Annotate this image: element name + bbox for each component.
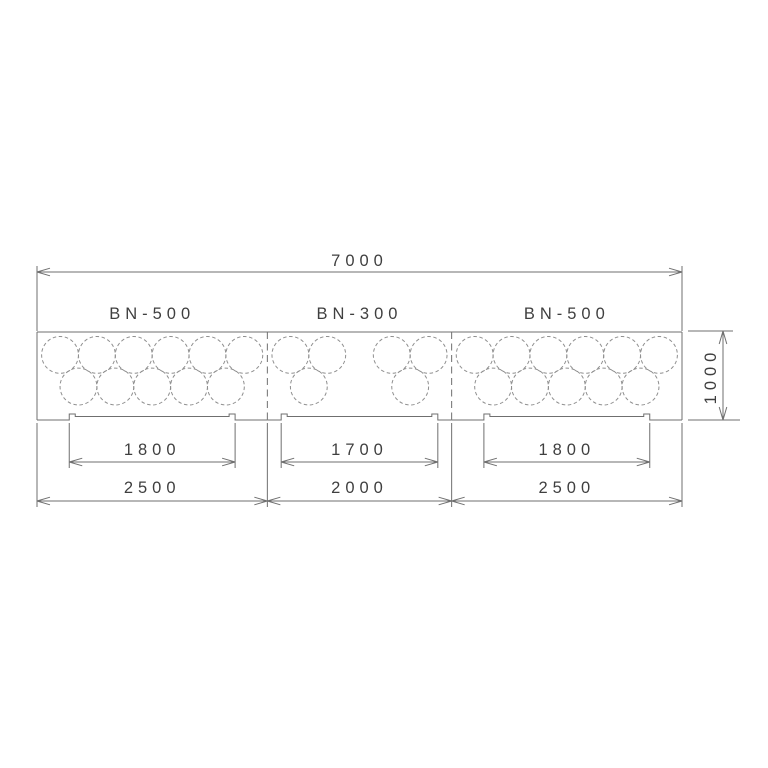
body-bottom-edge-with-opening	[37, 414, 267, 420]
section-label: BN-500	[524, 305, 610, 323]
culvert-body-outline	[37, 332, 682, 420]
arrowhead-right-icon	[425, 458, 438, 462]
arrowhead-left-icon	[267, 497, 280, 501]
arrowhead-left-icon	[69, 458, 82, 462]
arrowhead-up-icon	[723, 331, 727, 344]
arrowhead-right-icon	[439, 497, 452, 501]
void-circle	[78, 336, 115, 373]
void-circle	[309, 336, 346, 373]
arrowhead-right-icon	[669, 501, 682, 505]
drawing-canvas: BN-500BN-300BN-5007000180017001800250020…	[0, 0, 768, 768]
void-circle	[567, 336, 604, 373]
arrowhead-right-icon	[669, 272, 682, 276]
arrowhead-left-icon	[484, 458, 497, 462]
void-circle	[290, 368, 327, 405]
opening-dim-value: 1800	[538, 441, 595, 459]
void-circle	[60, 368, 97, 405]
arrowhead-left-icon	[37, 268, 50, 272]
void-circle	[585, 368, 622, 405]
void-circle	[410, 336, 447, 373]
void-circle	[272, 336, 309, 373]
body-bottom-edge-with-opening	[267, 414, 451, 420]
arrowhead-down-icon	[719, 407, 723, 420]
void-circle	[189, 336, 226, 373]
void-circle	[622, 368, 659, 405]
arrowhead-left-icon	[69, 462, 82, 466]
opening-dim-value: 1800	[124, 441, 181, 459]
arrowhead-left-icon	[452, 501, 465, 505]
arrowhead-left-icon	[452, 497, 465, 501]
section-labels: BN-500BN-300BN-500	[109, 305, 610, 323]
arrowhead-down-icon	[723, 407, 727, 420]
arrowhead-left-icon	[484, 462, 497, 466]
void-circle	[530, 336, 567, 373]
arrowhead-left-icon	[281, 458, 294, 462]
arrowhead-right-icon	[669, 497, 682, 501]
void-circle	[548, 368, 585, 405]
arrowhead-right-icon	[222, 458, 235, 462]
void-circle	[42, 336, 79, 373]
void-circle	[512, 368, 549, 405]
arrowhead-right-icon	[439, 501, 452, 505]
void-circle	[171, 368, 208, 405]
dimensions-section-widths: 250020002500	[37, 423, 682, 507]
void-circle	[604, 336, 641, 373]
void-circle	[456, 336, 493, 373]
height-dim-value: 1000	[702, 348, 720, 405]
void-circles	[42, 336, 678, 405]
section-width-value: 2500	[124, 479, 181, 497]
arrowhead-left-icon	[267, 501, 280, 505]
section-width-value: 2000	[331, 479, 388, 497]
void-circle	[641, 336, 678, 373]
arrowhead-right-icon	[254, 501, 267, 505]
arrowhead-left-icon	[37, 501, 50, 505]
void-circle	[493, 336, 530, 373]
dimension-height: 1000	[688, 331, 740, 420]
void-circle	[392, 368, 429, 405]
void-circle	[134, 368, 171, 405]
void-circle	[152, 336, 189, 373]
arrowhead-right-icon	[637, 458, 650, 462]
arrowhead-right-icon	[222, 462, 235, 466]
arrowhead-right-icon	[425, 462, 438, 466]
opening-dim-value: 1700	[331, 441, 388, 459]
void-circle	[226, 336, 263, 373]
void-circle	[373, 336, 410, 373]
arrowhead-left-icon	[281, 462, 294, 466]
body-bottom-edge-with-opening	[452, 414, 682, 420]
technical-plan-drawing: BN-500BN-300BN-5007000180017001800250020…	[0, 0, 768, 768]
void-circle	[97, 368, 134, 405]
arrowhead-up-icon	[719, 331, 723, 344]
arrowhead-right-icon	[254, 497, 267, 501]
void-circle	[475, 368, 512, 405]
void-circle	[207, 368, 244, 405]
section-label: BN-300	[317, 305, 403, 323]
section-label: BN-500	[109, 305, 195, 323]
arrowhead-right-icon	[669, 268, 682, 272]
overall-length-value: 7000	[331, 252, 388, 270]
void-circle	[115, 336, 152, 373]
dimensions-openings: 180017001800	[69, 423, 650, 468]
arrowhead-left-icon	[37, 272, 50, 276]
section-joint-lines	[267, 332, 451, 420]
arrowhead-right-icon	[637, 462, 650, 466]
section-width-value: 2500	[538, 479, 595, 497]
arrowhead-left-icon	[37, 497, 50, 501]
